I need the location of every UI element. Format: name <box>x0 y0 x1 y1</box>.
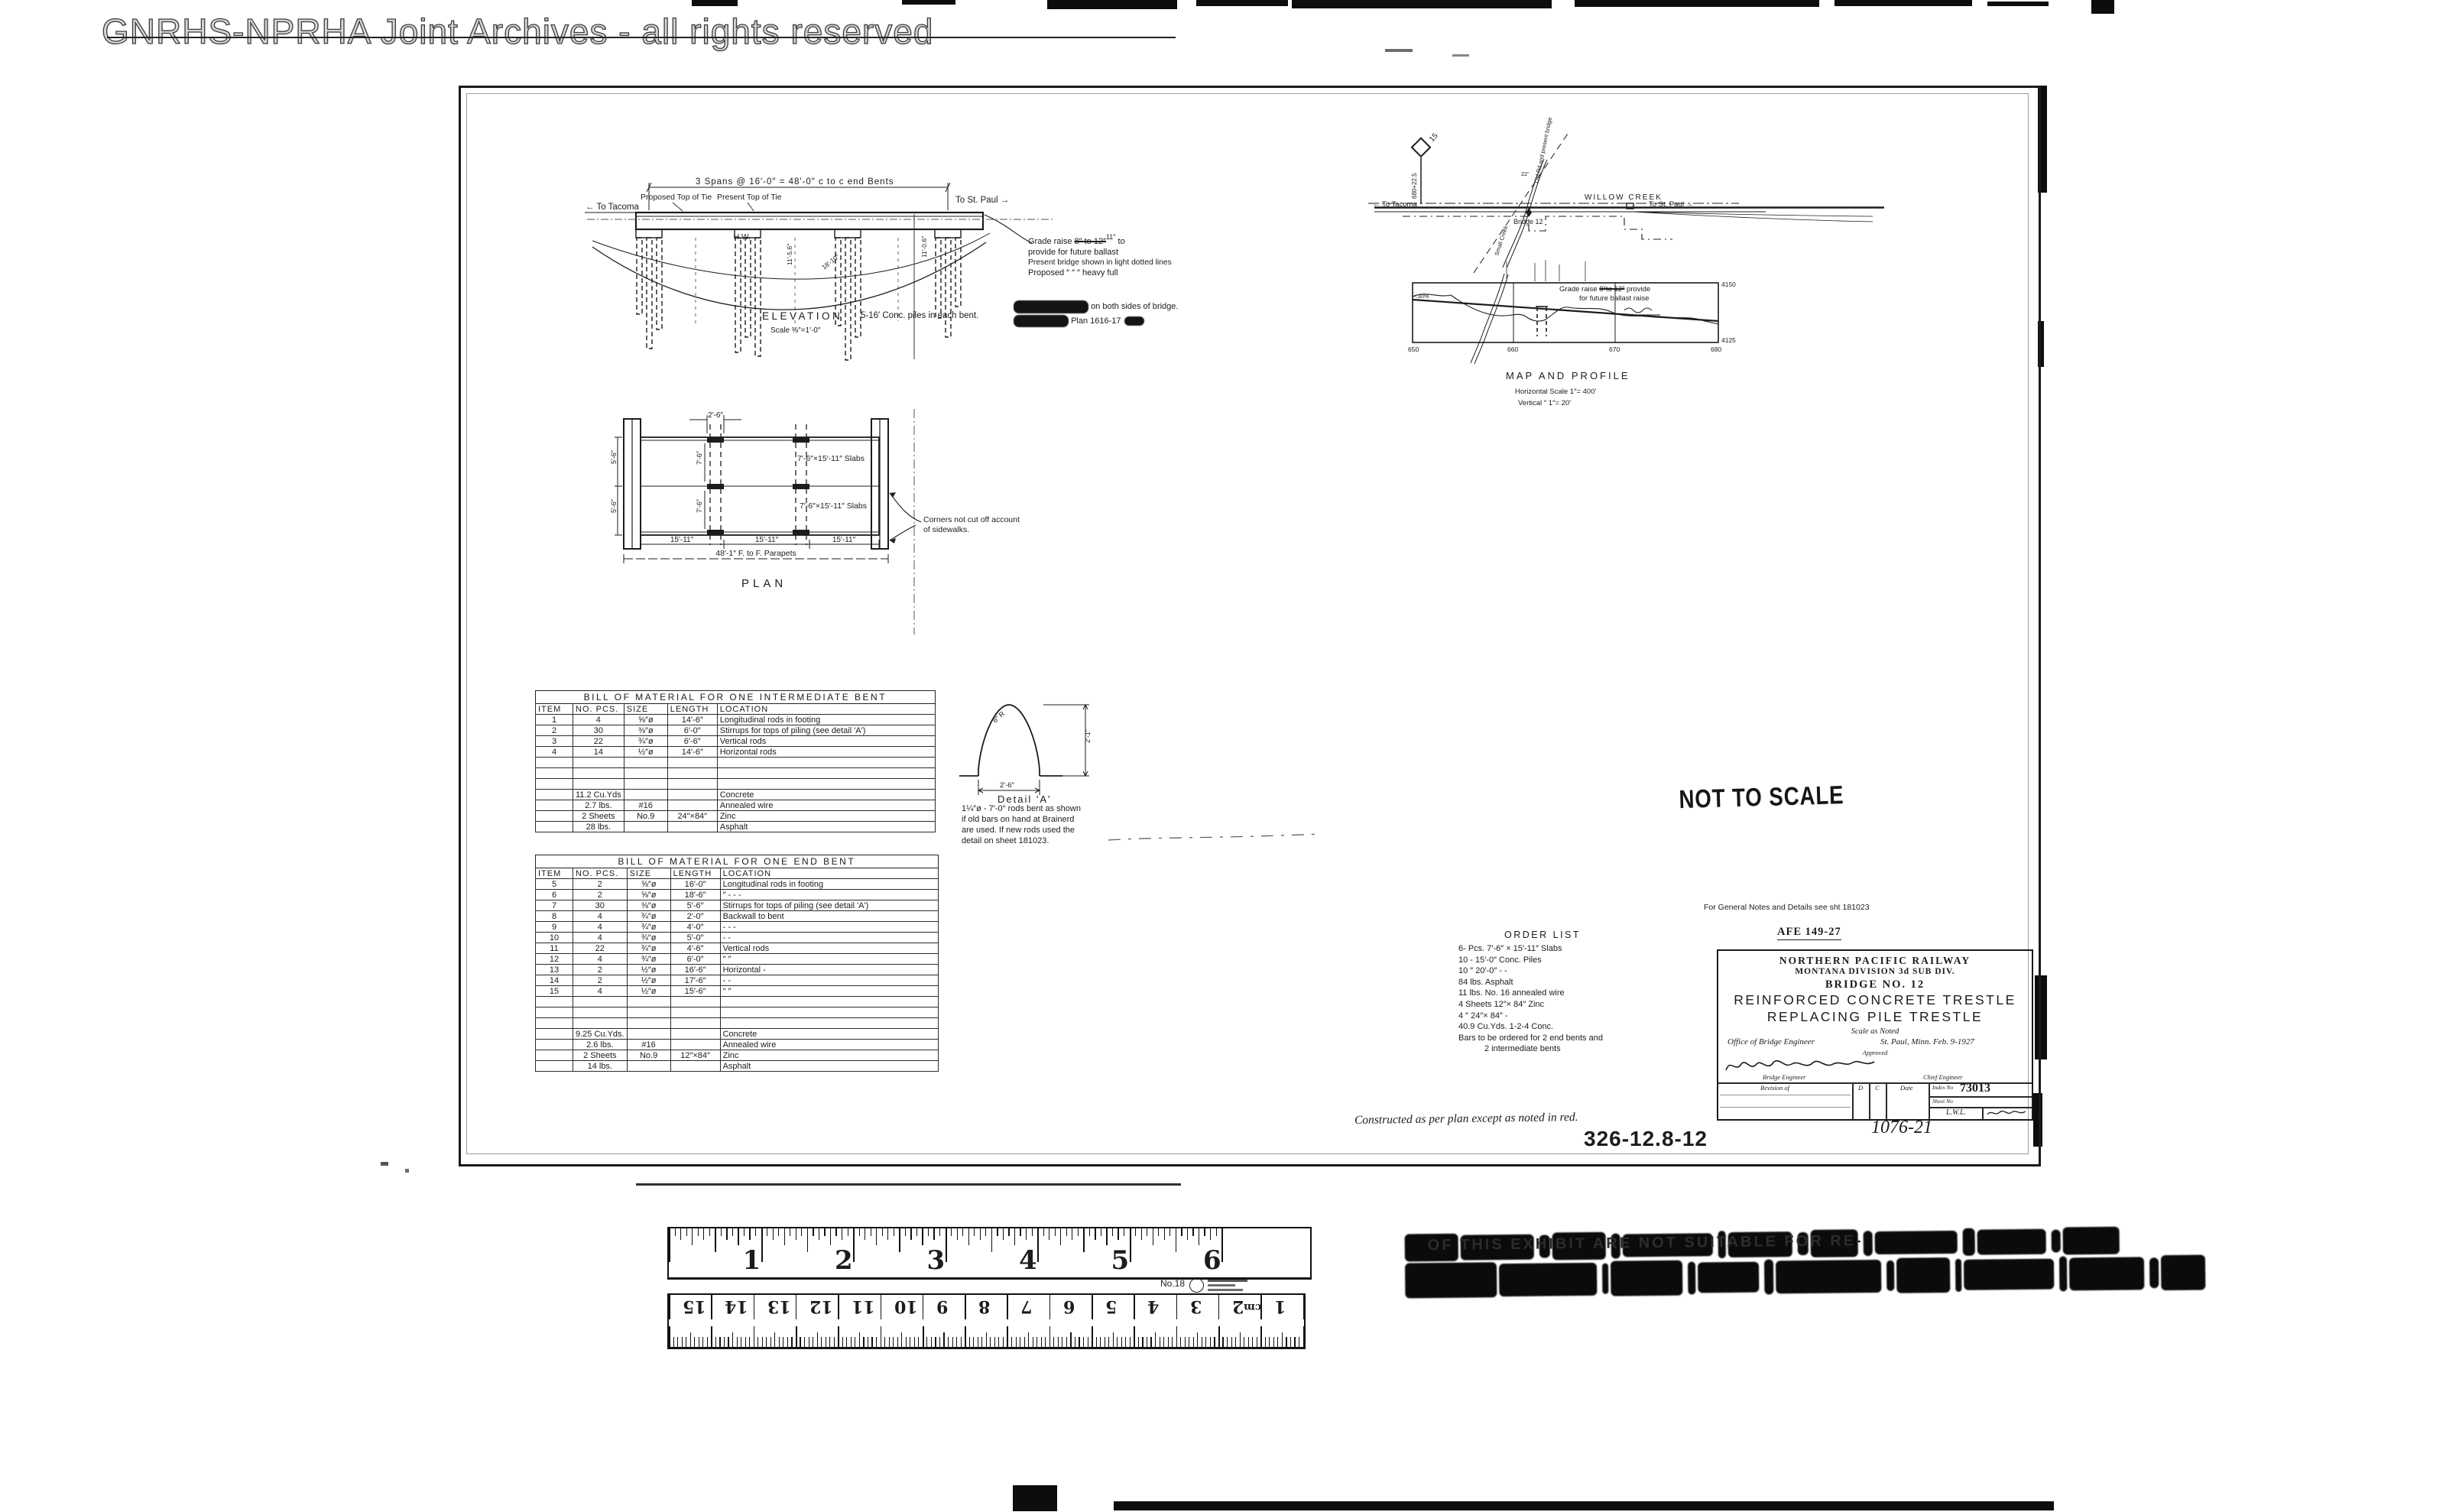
concrete-bents <box>636 229 961 360</box>
mm-tick <box>1294 1337 1295 1347</box>
mm-tick <box>1290 1337 1291 1347</box>
elevation-scale: Scale ⅛″=1′-0″ <box>770 326 821 335</box>
mm-tick <box>754 1326 755 1347</box>
order-list: 6- Pcs. 7′-6″ × 15′-11″ Slabs10 - 15′-0″… <box>1458 943 1603 1055</box>
scan-artifact <box>1047 0 1177 9</box>
ruler-tick <box>1181 1228 1182 1236</box>
column-header: LENGTH <box>667 704 717 715</box>
table-cell: 11 <box>536 943 573 954</box>
table-row <box>536 1007 939 1018</box>
table-cell: 14′-6″ <box>667 715 717 725</box>
mm-tick <box>1277 1337 1278 1347</box>
table-cell <box>573 758 624 768</box>
mm-tick <box>728 1337 728 1347</box>
mm-tick <box>868 1337 868 1347</box>
mm-tick <box>673 1337 674 1347</box>
table-cell: Vertical rods <box>720 943 938 954</box>
ruler-tick <box>721 1228 722 1236</box>
mm-tick <box>699 1337 699 1347</box>
table-cell: 4′-6″ <box>670 943 720 954</box>
cm-number: 1 <box>1274 1296 1286 1316</box>
profile-station: 660 <box>1507 346 1518 353</box>
ruler-tick <box>835 1228 836 1236</box>
mm-tick <box>935 1337 936 1347</box>
mm-tick <box>1070 1332 1071 1347</box>
cm-divider <box>796 1295 797 1319</box>
order-list-item: 6- Pcs. 7′-6″ × 15′-11″ Slabs <box>1458 943 1603 955</box>
ruler-tick <box>1083 1228 1084 1252</box>
profile-grade-percent: -.30% <box>1414 293 1429 300</box>
table-cell: 17′-6″ <box>670 975 720 986</box>
table-cell: 6′-0″ <box>667 725 717 736</box>
table-cell: No.9 <box>627 1050 670 1061</box>
ruler-tick <box>1153 1228 1153 1245</box>
scan-artifact <box>1114 1501 2054 1510</box>
railway-name: NORTHERN PACIFIC RAILWAY <box>1718 955 2032 967</box>
mm-tick <box>821 1337 822 1347</box>
table-cell: 4′-0″ <box>670 922 720 933</box>
ruler-tick <box>1210 1228 1211 1240</box>
ink-blob <box>1764 1259 1773 1294</box>
archive-watermark: GNRHS-NPRHA Joint Archives - all rights … <box>102 11 933 52</box>
table-row: 2 SheetsNo.912″×84″Zinc <box>536 1050 939 1061</box>
mm-tick <box>923 1326 924 1347</box>
ink-blob <box>2149 1257 2159 1288</box>
mm-tick <box>1024 1337 1025 1347</box>
mm-tick <box>1092 1326 1093 1347</box>
pile-dim-label: 11′-5.6″ <box>786 244 793 265</box>
mm-tick <box>893 1337 894 1347</box>
mm-tick <box>842 1337 843 1347</box>
profile-station: 680 <box>1711 346 1721 353</box>
detail-a-radius: 8″ R <box>991 709 1007 724</box>
ruler-tick <box>790 1228 790 1236</box>
mm-tick <box>745 1337 746 1347</box>
ruler-maker-text <box>1208 1289 1243 1291</box>
slab-label-bottom: 7′-6″×15′-11″ Slabs <box>800 501 867 511</box>
table-cell <box>717 779 935 790</box>
table-cell <box>536 1050 573 1061</box>
table-cell: ½″ø <box>624 747 667 758</box>
table-cell: 9 <box>536 922 573 933</box>
table-row: 154½″ø15′-6″″ ″ <box>536 986 939 997</box>
table-cell <box>667 822 717 832</box>
ruler-tick <box>1169 1228 1170 1236</box>
order-list-item: Bars to be ordered for 2 end bents and <box>1458 1033 1603 1044</box>
mm-tick <box>724 1337 725 1347</box>
table-row <box>536 997 939 1007</box>
scan-artifact <box>405 1169 409 1173</box>
table-row: 730⅜″ø5′-6″Stirrups for tops of piling (… <box>536 900 939 911</box>
table-row: 2.6 lbs.#16Annealed wire <box>536 1040 939 1050</box>
cm-number: 13 <box>767 1296 791 1316</box>
ruler-tick <box>899 1228 900 1252</box>
old-road-label: Old Rd and present bridge <box>1533 116 1553 183</box>
ruler-tick <box>887 1228 888 1240</box>
mm-tick <box>1007 1326 1008 1347</box>
ruler-tick <box>761 1228 763 1262</box>
ruler-maker-text <box>1208 1280 1247 1282</box>
table-cell <box>536 779 573 790</box>
detail-a-caption-line: are used. If new rods used the <box>962 825 1081 835</box>
mm-tick <box>741 1337 741 1347</box>
mm-tick <box>961 1337 962 1347</box>
table-row: 28 lbs.Asphalt <box>536 822 936 832</box>
mm-tick <box>973 1337 974 1347</box>
ruler-tick <box>946 1228 947 1262</box>
profile-grade-tail: provide <box>1624 285 1650 294</box>
column-header: SIZE <box>624 704 667 715</box>
scan-artifact <box>1013 1485 1057 1511</box>
ruler-maker-logo <box>1189 1278 1204 1293</box>
ruler-tick <box>859 1228 860 1236</box>
mm-tick <box>1033 1337 1033 1347</box>
table-cell: #16 <box>627 1040 670 1050</box>
mm-tick <box>851 1337 852 1347</box>
mm-tick <box>829 1337 830 1347</box>
table-cell <box>536 811 573 822</box>
table-cell: ⅝″ø <box>624 715 667 725</box>
ruler-tick <box>703 1228 704 1240</box>
table-cell <box>536 1007 573 1018</box>
mm-tick <box>881 1326 882 1347</box>
revision-label: Revision of <box>1760 1084 1789 1092</box>
table-row: 9.25 Cu.Yds.Concrete <box>536 1029 939 1040</box>
ruler-tick <box>928 1228 929 1236</box>
ruler-tick <box>1026 1228 1027 1240</box>
mm-tick <box>711 1326 712 1347</box>
cm-number: 3 <box>1190 1296 1202 1316</box>
table-cell <box>627 997 670 1007</box>
ruler-tick <box>1049 1228 1049 1240</box>
corner-note-line2: of sidewalks. <box>923 525 969 534</box>
table-cell: 4 <box>573 911 628 922</box>
cm-divider <box>1092 1295 1093 1319</box>
table-cell: Annealed wire <box>717 800 935 811</box>
cm-number: 5 <box>1105 1296 1117 1316</box>
mm-tick <box>1079 1337 1079 1347</box>
cm-divider <box>1218 1295 1220 1319</box>
place-date: St. Paul, Minn. Feb. 9-1927 <box>1880 1037 1974 1046</box>
mm-tick <box>702 1337 703 1347</box>
table-cell: 14 lbs. <box>573 1061 628 1072</box>
table-row: 124¾″ø6′-0″″ ″ <box>536 954 939 965</box>
order-list-item: 84 lbs. Asphalt <box>1458 977 1603 988</box>
ruler-tick <box>669 1228 670 1262</box>
cm-divider <box>923 1295 924 1319</box>
table-cell: ¾″ø <box>624 736 667 747</box>
mm-tick <box>926 1337 927 1347</box>
table-cell: ″ ″ <box>720 954 938 965</box>
table-cell: 2 <box>573 975 628 986</box>
mm-tick <box>1045 1337 1046 1347</box>
table-row: 322¾″ø6′-6″Vertical rods <box>536 736 936 747</box>
detail-a-width-dim: 2′-6″ <box>1000 781 1015 790</box>
ruler-tick <box>784 1228 785 1245</box>
mm-tick <box>1214 1337 1215 1347</box>
mm-tick <box>1231 1337 1232 1347</box>
elevation-title: ELEVATION <box>762 310 842 322</box>
ink-blob <box>2069 1257 2144 1290</box>
mm-tick <box>838 1326 839 1347</box>
order-list-item: 2 intermediate bents <box>1484 1043 1603 1055</box>
ruler-tick <box>842 1228 842 1240</box>
mm-tick <box>787 1337 788 1347</box>
table-cell: 2 <box>573 965 628 975</box>
table-cell: - - <box>720 933 938 943</box>
mm-tick <box>969 1337 970 1347</box>
total-dim: 48′-1″ F. to F. Parapets <box>715 549 796 558</box>
ruler-tick <box>894 1228 894 1236</box>
ruler-tick <box>1089 1228 1090 1236</box>
ruler-tick <box>997 1228 998 1236</box>
table-cell <box>536 997 573 1007</box>
ink-blob <box>2059 1256 2067 1291</box>
ruler-tick <box>675 1228 676 1236</box>
inch-number: 1 <box>743 1245 761 1276</box>
tracing-number: 1076-21 <box>1871 1118 1932 1138</box>
ink-blob <box>1014 300 1088 313</box>
ruler-tick <box>1221 1228 1223 1262</box>
mm-tick <box>956 1337 957 1347</box>
table-cell <box>667 768 717 779</box>
mm-tick <box>1016 1337 1017 1347</box>
table-row: 132½″ø16′-6″Horizontal - <box>536 965 939 975</box>
mm-tick <box>1210 1337 1211 1347</box>
mm-tick <box>998 1337 999 1347</box>
ruler-tick <box>680 1228 681 1240</box>
mm-tick <box>1282 1332 1283 1347</box>
cm-unit-label: cm <box>1244 1301 1261 1313</box>
map-profile-title: MAP AND PROFILE <box>1506 370 1630 381</box>
mm-tick <box>1235 1337 1236 1347</box>
column-header: ITEM <box>536 704 573 715</box>
mm-tick <box>1168 1337 1169 1347</box>
index-label: Index No <box>1932 1084 1953 1091</box>
general-notes-reference: For General Notes and Details see sht 18… <box>1704 903 1870 912</box>
mm-tick <box>1041 1337 1042 1347</box>
table-row <box>536 779 936 790</box>
mm-tick <box>834 1337 835 1347</box>
mm-tick <box>1011 1337 1012 1347</box>
map-station-number: 680+22.5 <box>1411 173 1418 199</box>
mm-tick <box>1257 1337 1257 1347</box>
table-cell <box>624 758 667 768</box>
plan-gauge-dim-lower: 7′-6″ <box>696 498 703 513</box>
ruler-tick <box>773 1228 774 1240</box>
table-cell <box>624 790 667 800</box>
inch-ruler: 123456 <box>667 1227 1312 1280</box>
ruler-tick <box>985 1228 986 1236</box>
cm-number: 6 <box>1063 1296 1075 1316</box>
ruler-tick <box>801 1228 802 1236</box>
ruler-tick <box>1014 1228 1015 1245</box>
table-cell: ¾″ø <box>627 922 670 933</box>
profile-grade-note: Grade raise 8″to 12″ provide for future … <box>1559 285 1727 303</box>
mm-tick <box>749 1337 750 1347</box>
table-cell: ″ ″ <box>720 986 938 997</box>
table-row <box>536 758 936 768</box>
scan-artifact <box>1452 54 1469 57</box>
mm-tick <box>1189 1337 1189 1347</box>
table-cell: Horizontal rods <box>717 747 935 758</box>
scan-artifact <box>2091 0 2114 14</box>
mm-tick <box>1058 1337 1059 1347</box>
table-row: 52⅝″ø16′-0″Longitudinal rods in footing <box>536 879 939 890</box>
ruler-tick <box>1043 1228 1044 1236</box>
inch-number: 6 <box>1203 1245 1221 1276</box>
table-row: 14 lbs.Asphalt <box>536 1061 939 1072</box>
ink-blob <box>2161 1254 2205 1290</box>
cm-divider <box>1134 1295 1135 1319</box>
mm-tick <box>986 1332 987 1347</box>
mm-tick <box>804 1337 805 1347</box>
table-cell: 8 <box>536 911 573 922</box>
ink-blob <box>1964 1259 2054 1290</box>
ink-blob <box>1886 1261 1894 1291</box>
table-cell <box>670 1007 720 1018</box>
mm-tick <box>952 1337 953 1347</box>
mm-tick <box>1117 1337 1118 1347</box>
milepost-number: 15 <box>1428 131 1440 144</box>
mm-tick <box>1244 1337 1244 1347</box>
column-header: NO. PCS. <box>573 868 628 879</box>
mm-tick <box>1185 1337 1186 1347</box>
ruler-tick <box>939 1228 940 1236</box>
mm-tick <box>859 1332 860 1347</box>
table-cell <box>624 768 667 779</box>
table-cell <box>536 790 573 800</box>
ruler-tick <box>962 1228 963 1236</box>
detail-a-height-dim: 2′-1″ <box>1084 728 1092 743</box>
panel-dim: 15′-11″ <box>832 536 856 544</box>
ruler-tick <box>1130 1228 1131 1262</box>
panel-dim: 15′-11″ <box>755 536 779 544</box>
table-cell: ¾″ø <box>627 933 670 943</box>
table-cell: 11.2 Cu.Yds <box>573 790 624 800</box>
mm-tick <box>732 1332 733 1347</box>
elevation-to-stpaul: To St. Paul → <box>955 196 1009 205</box>
ruler-tick <box>796 1228 796 1240</box>
ruler-tick <box>933 1228 934 1240</box>
ruler-tick <box>910 1228 911 1240</box>
order-list-item: 4 ″ 24″× 84″ - <box>1458 1011 1603 1022</box>
table-cell <box>536 1061 573 1072</box>
table-cell: 2.6 lbs. <box>573 1040 628 1050</box>
mm-tick <box>774 1332 775 1347</box>
mm-tick <box>757 1337 758 1347</box>
table-cell: 12 <box>536 954 573 965</box>
cm-number: 10 <box>894 1296 918 1316</box>
mm-tick <box>800 1337 800 1347</box>
table-cell <box>720 1007 938 1018</box>
table-cell: 4 <box>573 715 624 725</box>
order-list-item: 40.9 Cu.Yds. 1-2-4 Conc. <box>1458 1021 1603 1033</box>
ruler-tick <box>916 1228 917 1236</box>
table-cell: ⅜″ø <box>624 725 667 736</box>
cm-divider <box>881 1295 882 1319</box>
table-cell <box>573 1018 628 1029</box>
cm-divider <box>1176 1295 1178 1319</box>
ruler-tick <box>1187 1228 1188 1240</box>
table-cell <box>670 1029 720 1040</box>
mm-tick <box>1265 1337 1266 1347</box>
table-cell: No.9 <box>624 811 667 822</box>
table-cell: Vertical rods <box>717 736 935 747</box>
cm-number: 15 <box>683 1296 706 1316</box>
ruler-tick <box>865 1228 865 1240</box>
order-list-item: 10 ″ 20′-0″ - - <box>1458 965 1603 977</box>
mm-tick <box>1100 1337 1101 1347</box>
mm-tick <box>796 1326 797 1347</box>
mm-tick <box>809 1337 809 1347</box>
ruler-tick <box>1135 1228 1136 1236</box>
inch-number: 2 <box>835 1245 853 1276</box>
mm-tick <box>914 1337 915 1347</box>
diagonal-dim-label: 18′-10″ <box>820 252 841 271</box>
table-row: 230⅜″ø6′-0″Stirrups for tops of piling (… <box>536 725 936 736</box>
table-cell <box>627 1007 670 1018</box>
ruler-tick <box>876 1228 877 1245</box>
inked-note-fragment: on both sides of bridge. <box>1091 302 1178 311</box>
plan-gauge-dim-upper: 7′-6″ <box>696 450 703 465</box>
index-number: 73013 <box>1960 1082 1990 1095</box>
ruler-tick <box>1106 1228 1107 1245</box>
table-cell: Zinc <box>720 1050 938 1061</box>
bill-of-material-intermediate-bent: BILL OF MATERIAL FOR ONE INTERMEDIATE BE… <box>535 690 936 832</box>
scan-artifact <box>1385 49 1413 52</box>
scan-artifact <box>1835 0 1972 6</box>
mm-tick <box>1020 1337 1020 1347</box>
scan-artifact <box>692 0 738 6</box>
mm-tick <box>1160 1337 1160 1347</box>
mm-tick <box>846 1337 847 1347</box>
mm-tick <box>1155 1332 1156 1347</box>
ruler-tick <box>755 1228 756 1236</box>
division-line: MONTANA DIVISION 3d SUB DIV. <box>1718 967 2032 976</box>
mm-tick <box>1134 1326 1135 1347</box>
ruler-tick <box>1216 1228 1217 1236</box>
mm-tick <box>884 1337 885 1347</box>
cm-number: 9 <box>936 1296 948 1316</box>
table-cell: Zinc <box>717 811 935 822</box>
table-cell <box>573 997 628 1007</box>
present-top-of-tie-label: Present Top of Tie <box>717 193 782 202</box>
ruler-tick <box>1164 1228 1165 1240</box>
mm-tick <box>1269 1337 1270 1347</box>
cm-divider <box>838 1295 839 1319</box>
table-cell: ½″ø <box>627 975 670 986</box>
mm-tick <box>1049 1326 1051 1347</box>
table-cell: 2 Sheets <box>573 1050 628 1061</box>
table-cell: ″ - - - <box>720 890 938 900</box>
table-cell: 5′-6″ <box>670 900 720 911</box>
table-cell <box>536 1029 573 1040</box>
ruler-model-label: No.18 <box>1160 1278 1185 1289</box>
table-cell: - - <box>720 975 938 986</box>
mm-tick <box>1053 1337 1054 1347</box>
table-cell <box>717 758 935 768</box>
ruler-tick <box>744 1228 745 1236</box>
detail-a-caption-line: 1¼″ø - 7′-0″ rods bent as shown <box>962 803 1081 814</box>
inch-number: 3 <box>927 1245 946 1276</box>
inked-out-stamp: OF THIS EXHIBIT ARE NOT SUITABLE FOR RE- <box>1405 1223 2057 1305</box>
table-cell: 7 <box>536 900 573 911</box>
mm-tick <box>1248 1337 1249 1347</box>
ruler-tick <box>1066 1228 1067 1236</box>
order-list-item: 4 Sheets 12″× 84″ Zinc <box>1458 999 1603 1011</box>
ruler-tick <box>732 1228 733 1236</box>
